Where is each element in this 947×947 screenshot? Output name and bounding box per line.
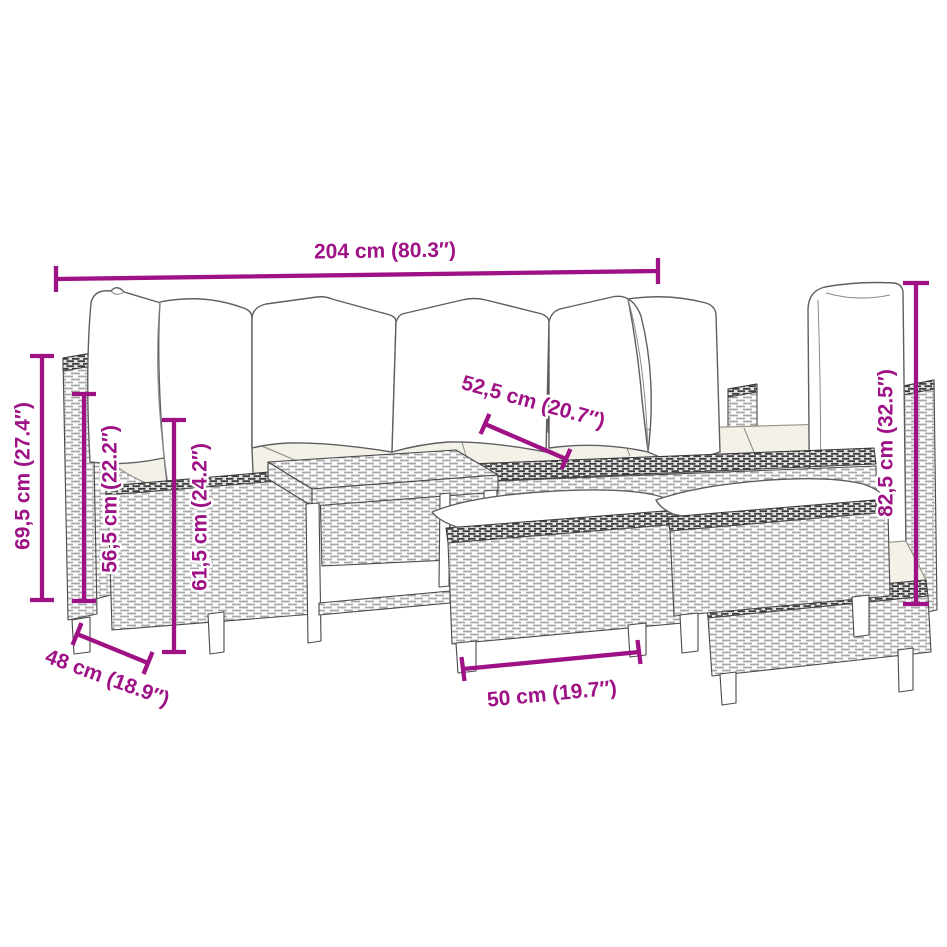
pillow-3 bbox=[252, 297, 396, 452]
dimension-right-backrest-height-label: 82,5 cm (32.5″) bbox=[875, 369, 898, 517]
right-outer-leg bbox=[898, 648, 913, 692]
dimension-seat-height-label: 61,5 cm (24.2″) bbox=[189, 443, 212, 591]
dimension-backrest-height-label: 69,5 cm (27.4″) bbox=[12, 402, 35, 550]
dimension-line bbox=[56, 258, 658, 292]
dimension-stool-width-label: 50 cm (19.7″) bbox=[486, 676, 618, 711]
diagram-canvas: 204 cm (80.3″) 69,5 cm (27.4″) 56,5 cm (… bbox=[0, 0, 947, 947]
footstool-right-leg-left bbox=[680, 613, 698, 653]
footstool-center-body bbox=[448, 523, 694, 644]
dimension-armrest-height-label: 56,5 cm (22.2″) bbox=[99, 425, 122, 573]
right-front-leg bbox=[720, 672, 736, 705]
dimension-overall-width: 204 cm (80.3″) bbox=[56, 239, 658, 292]
left-front-leg bbox=[208, 612, 224, 654]
footstool-center bbox=[432, 490, 694, 673]
dimension-stool-width: 50 cm (19.7″) bbox=[462, 640, 641, 712]
dimension-backrest-height: 69,5 cm (27.4″) bbox=[12, 356, 54, 600]
product-dimension-diagram: 204 cm (80.3″) 69,5 cm (27.4″) 56,5 cm (… bbox=[0, 0, 947, 947]
footstool-right-leg-right bbox=[852, 595, 869, 637]
table-leg-front-left bbox=[306, 503, 321, 643]
dimension-line bbox=[462, 640, 641, 681]
dimension-overall-width-label: 204 cm (80.3″) bbox=[314, 239, 456, 264]
dimension-seat-depth: 48 cm (18.9″) bbox=[42, 623, 172, 711]
